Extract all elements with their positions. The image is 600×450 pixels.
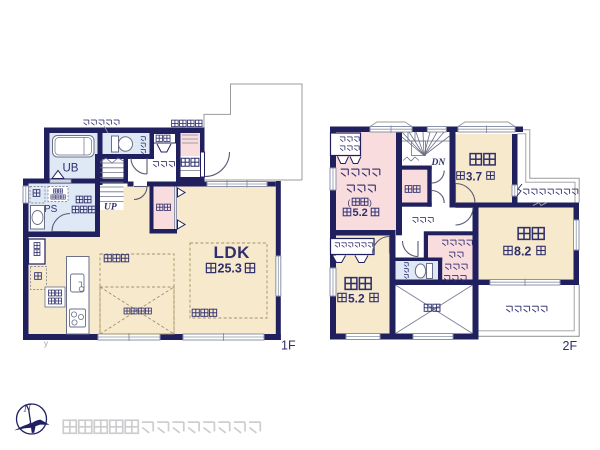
- svg-text:25.3: 25.3: [218, 262, 242, 276]
- svg-text:N: N: [23, 404, 32, 415]
- svg-text:UB: UB: [63, 163, 79, 175]
- svg-text:LDK: LDK: [214, 243, 251, 262]
- svg-text:2F: 2F: [563, 339, 578, 353]
- svg-text:): ): [369, 198, 372, 208]
- svg-text:UP: UP: [104, 203, 117, 213]
- svg-text:(: (: [348, 198, 351, 208]
- svg-text:8.2: 8.2: [514, 245, 531, 259]
- svg-text:y: y: [44, 339, 48, 348]
- svg-text:1F: 1F: [281, 339, 296, 353]
- svg-text:DN: DN: [431, 158, 447, 168]
- svg-text:5.2: 5.2: [348, 292, 365, 306]
- svg-text:3.7: 3.7: [466, 172, 482, 184]
- svg-text:PS: PS: [44, 204, 58, 215]
- svg-text:5.2: 5.2: [353, 207, 368, 219]
